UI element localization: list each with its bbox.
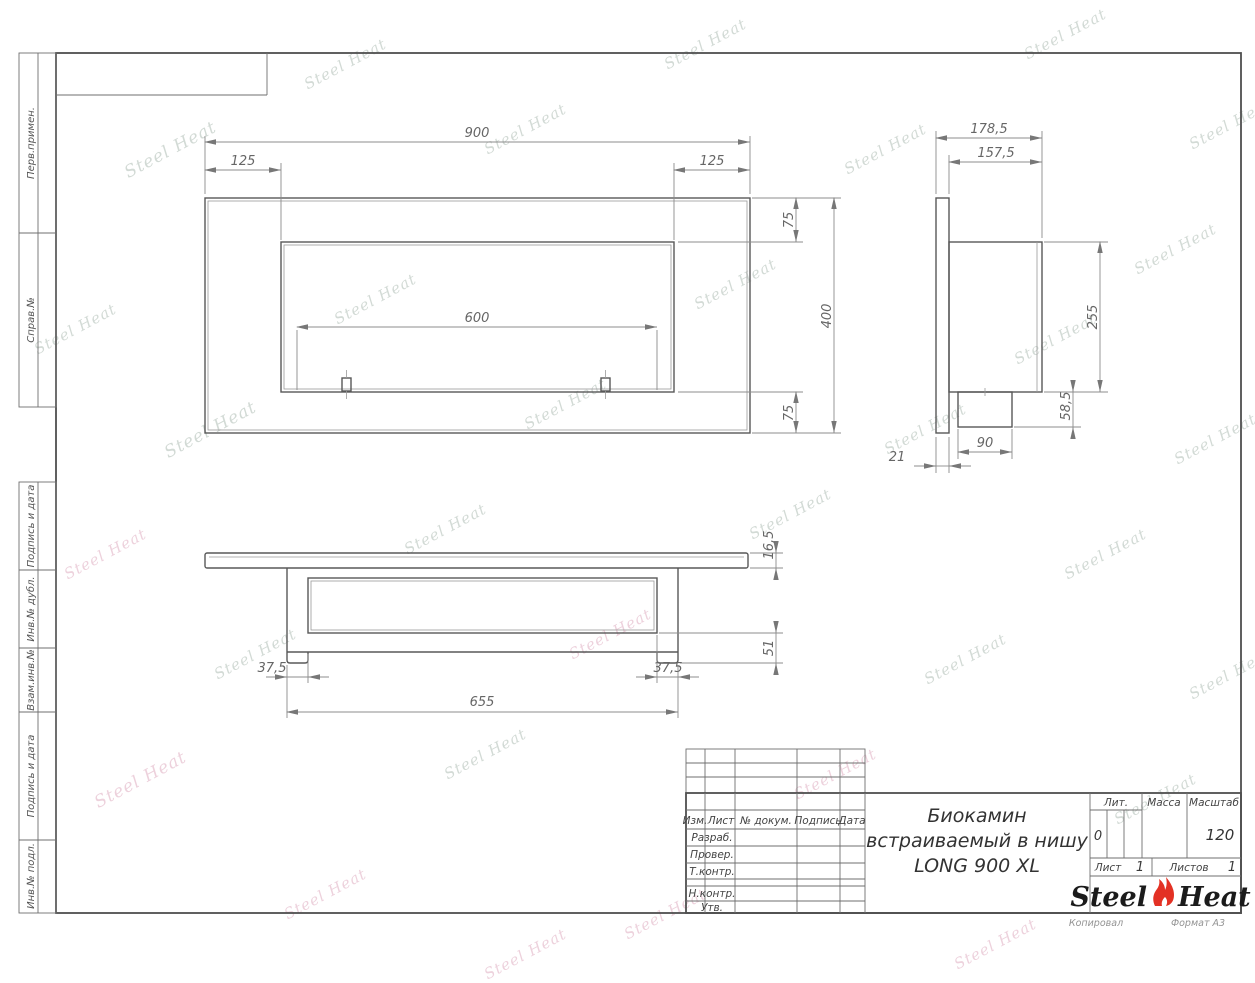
dim-front-inset-right: 125 (700, 154, 725, 169)
dim-front-top: 75 (782, 212, 797, 229)
dim-bottom-panel-thickness: 16,5 (762, 531, 777, 560)
tb-col-izm: Изм. (683, 815, 708, 827)
dim-front-burner: 600 (465, 311, 490, 326)
tb-col-list: Лист (707, 815, 735, 827)
dim-front-inset-left: 125 (231, 154, 256, 169)
tb-col-date: Дата (837, 815, 865, 827)
title-block: Изм. Лист № докум. Подпись Дата Разраб. … (683, 749, 1252, 929)
tb-col-sign: Подпись (794, 815, 841, 827)
dim-side-foot-height: 58,5 (1059, 392, 1074, 421)
tb-row-tkontr: Т.контр. (689, 866, 735, 878)
bottom-view: 16,5 51 37,5 37,5 655 (205, 531, 783, 718)
bottom-body (287, 568, 678, 652)
tb-sheets-value: 1 (1228, 860, 1236, 875)
dim-side-depth-total: 178,5 (970, 122, 1007, 137)
sheet: Steel Heat Steel Heat Steel Heat Steel H… (0, 0, 1255, 970)
tb-sheets-label: Листов (1168, 862, 1208, 874)
tb-scale-value: 120 (1206, 826, 1235, 844)
dim-side-body-height: 255 (1086, 305, 1101, 330)
tb-row-nkontr: Н.контр. (689, 888, 736, 900)
logo-steel-text: Steel (1070, 882, 1147, 913)
doc-title-line1: Биокамин (927, 805, 1026, 827)
dim-side-panel-thickness: 21 (889, 450, 906, 465)
dim-front-width: 900 (465, 126, 490, 141)
dim-side-foot-width: 90 (977, 436, 994, 451)
front-view: 900 125 125 600 75 400 75 (205, 126, 841, 433)
side-foot (958, 392, 1012, 427)
tb-mass-label: Масса (1147, 797, 1180, 809)
kopiroval-note: Копировал (1069, 918, 1123, 929)
logo-heat-text: Heat (1177, 882, 1251, 913)
tb-sheet-value: 1 (1136, 860, 1144, 875)
tb-row-prover: Провер. (690, 849, 734, 861)
margin-label-podpis-data-1: Подпись и дата (26, 485, 37, 568)
drawing-sheet: { "watermark": { "text": "Steel Heat" },… (0, 0, 1255, 970)
doc-title-line3: LONG 900 XL (914, 855, 1040, 877)
tb-lit-value: 0 (1094, 829, 1102, 844)
side-front-panel (936, 198, 949, 433)
tb-sheet-label: Лист (1094, 862, 1122, 874)
dim-front-height: 400 (820, 304, 835, 329)
margin-label-vzam-inv: Взам.инв.№ (26, 649, 37, 711)
dim-bottom-inset-left: 37,5 (258, 661, 287, 676)
dim-bottom-width: 655 (470, 695, 495, 710)
bottom-foot-left (287, 652, 308, 663)
margin-column: Перв.примен. Справ.№ Подпись и дата Инв.… (19, 53, 56, 913)
tb-lit-label: Лит. (1103, 797, 1128, 809)
doc-title-line2: встраиваемый в нишу (866, 830, 1088, 852)
flame-icon (1153, 877, 1174, 906)
margin-label-sprav-no: Справ.№ (26, 297, 37, 342)
bottom-panel (205, 553, 748, 568)
format-note: Формат А3 (1171, 918, 1225, 929)
tb-scale-label: Масштаб (1189, 797, 1239, 809)
sheet-frame (56, 53, 1241, 913)
margin-label-inv-podl: Инв.№ подл. (26, 843, 37, 909)
steel-heat-logo: Steel Heat (1070, 877, 1251, 913)
dim-bottom-foot-drop: 51 (762, 640, 777, 657)
tb-row-razrab: Разраб. (691, 832, 732, 844)
margin-label-podpis-data-2: Подпись и дата (26, 735, 37, 818)
margin-label-perv-primen: Перв.примен. (26, 107, 37, 179)
dim-front-bottom: 75 (782, 405, 797, 422)
bottom-window (308, 578, 657, 633)
side-view: 178,5 157,5 255 58,5 90 21 (889, 122, 1108, 473)
tb-col-doc: № докум. (739, 815, 792, 827)
dim-side-depth-body: 157,5 (977, 146, 1014, 161)
tb-row-utv: Утв. (701, 902, 723, 914)
drawing-svg: Перв.примен. Справ.№ Подпись и дата Инв.… (0, 0, 1255, 970)
side-body (949, 242, 1042, 392)
dim-bottom-inset-right: 37,5 (654, 661, 683, 676)
margin-label-inv-dubl: Инв.№ дубл. (25, 576, 37, 641)
